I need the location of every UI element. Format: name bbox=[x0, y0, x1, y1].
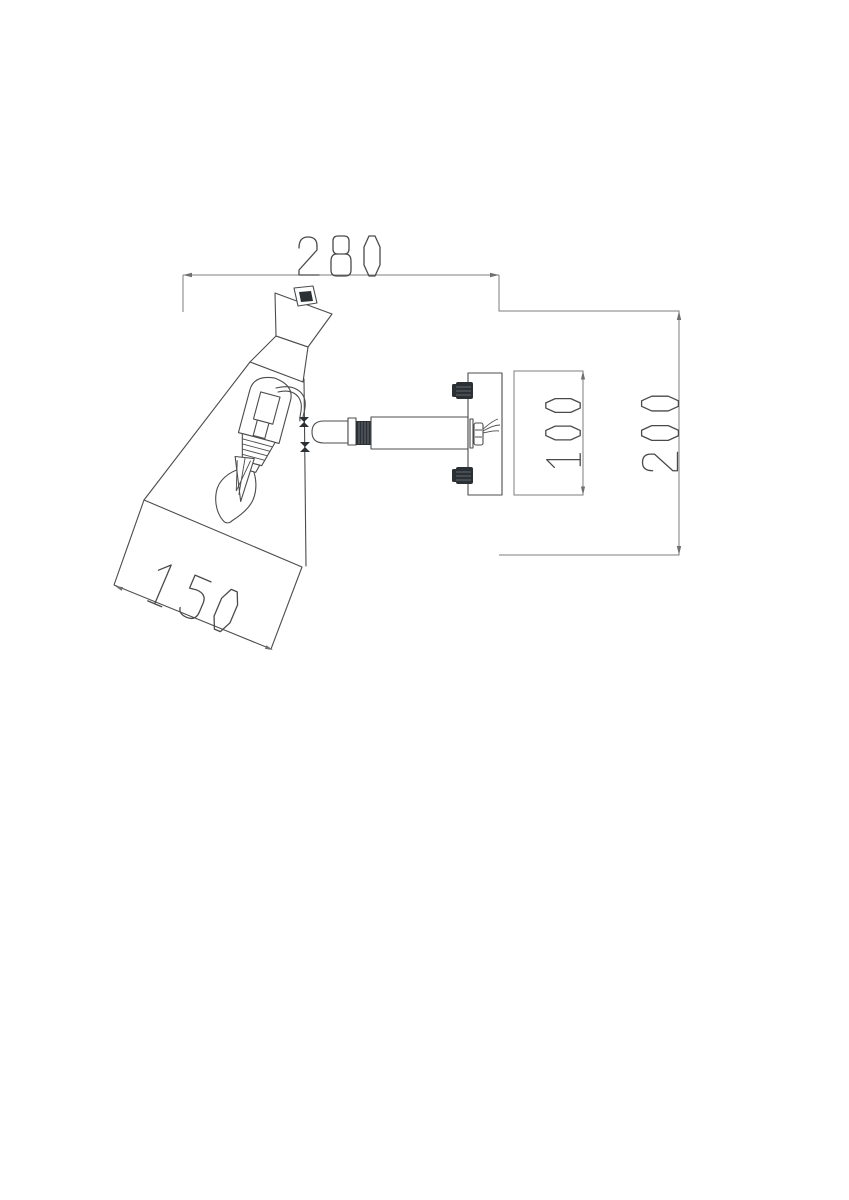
arrow-280-left bbox=[183, 273, 192, 277]
shade-holder-funnel bbox=[250, 286, 332, 382]
dimension-digit-2 bbox=[643, 452, 678, 470]
arm-tube bbox=[371, 417, 468, 449]
dimension-digit-1 bbox=[547, 454, 581, 468]
dimension-text-overall-width: 280 bbox=[299, 236, 380, 276]
arm-collar bbox=[348, 418, 356, 445]
dimension-text-backplate-height: 100 bbox=[546, 399, 580, 468]
drawing-sheet: 280 200 100 150 bbox=[0, 0, 849, 1200]
arm-thread-coupler bbox=[356, 421, 371, 445]
arm-fixing-nut bbox=[470, 419, 483, 448]
swivel-capsule bbox=[312, 421, 348, 443]
pivot-clamp-upper bbox=[299, 417, 309, 427]
dim-100-box bbox=[514, 371, 583, 495]
dimension-digit-2 bbox=[299, 237, 319, 275]
arrow-100-top bbox=[581, 371, 585, 380]
pivot-clamp-lower bbox=[300, 442, 310, 452]
wall-backplate bbox=[452, 373, 502, 495]
funnel-neck-band bbox=[250, 336, 308, 382]
dimension-digit-8 bbox=[331, 236, 351, 276]
mounting-bolt-top bbox=[452, 382, 473, 399]
dimension-digit-0 bbox=[642, 426, 679, 441]
dim-200-line bbox=[499, 275, 679, 555]
shade-mouth-rim bbox=[114, 500, 302, 649]
dimension-digit-0 bbox=[642, 396, 679, 411]
arrow-100-bottom bbox=[581, 487, 585, 496]
top-knob-insert bbox=[299, 291, 313, 302]
dimension-digit-0 bbox=[546, 426, 580, 440]
dimension-digit-0 bbox=[546, 399, 580, 413]
arm-assembly bbox=[312, 417, 468, 449]
arrow-200-top bbox=[677, 311, 681, 320]
arrow-280-right bbox=[490, 273, 499, 277]
dimension-text-overall-height: 200 bbox=[642, 396, 679, 471]
arrow-200-bottom bbox=[677, 546, 681, 555]
dimension-digit-0 bbox=[364, 236, 380, 276]
socket-and-bulb bbox=[209, 371, 295, 531]
candle-bulb bbox=[209, 464, 260, 528]
mounting-bolt-bottom bbox=[452, 467, 473, 484]
wall-lamp-side-view-drawing: 280 200 100 150 bbox=[0, 0, 849, 1200]
